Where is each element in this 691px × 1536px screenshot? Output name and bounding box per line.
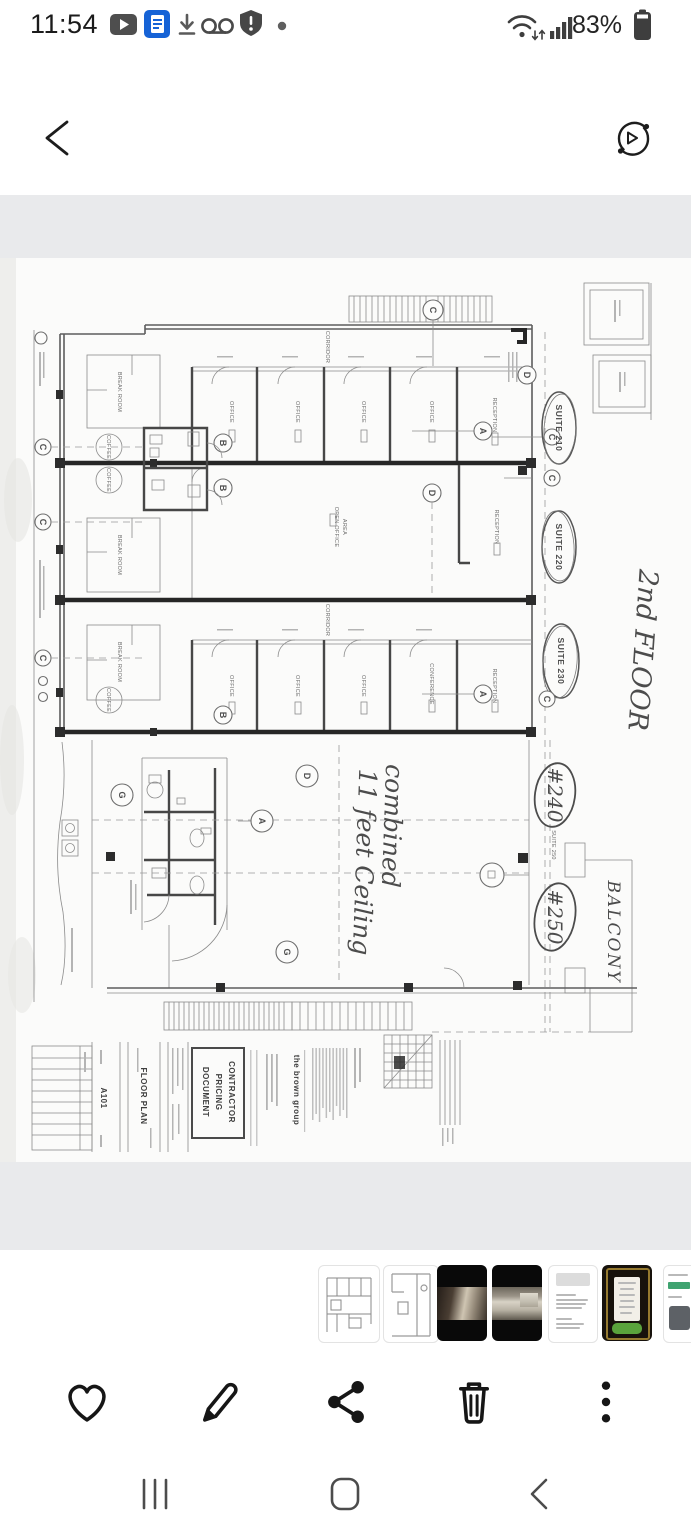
delete-button[interactable]: [446, 1374, 502, 1430]
sheet-number: A101: [99, 1087, 108, 1108]
grid-bubble: D: [302, 773, 312, 780]
thumbnail-listing-card-2[interactable]: [663, 1265, 691, 1343]
room-label: RECEPTION: [493, 510, 499, 545]
share-button[interactable]: [318, 1374, 374, 1430]
room-label: CORRIDOR: [324, 331, 330, 363]
thumbnail-floor-plan-detail[interactable]: [383, 1265, 439, 1343]
room-label: BREAK ROOM: [116, 372, 122, 412]
grid-bubble: A: [257, 818, 267, 825]
thumbnail-strip: [0, 1250, 691, 1355]
recents-button[interactable]: [127, 1468, 183, 1520]
thumbnail-listing-card[interactable]: [548, 1265, 598, 1343]
grid-bubble: C: [542, 696, 552, 703]
thumbnail-office-photo[interactable]: [492, 1265, 542, 1341]
heart-icon: [70, 1386, 104, 1419]
room-label: BREAK ROOM: [116, 535, 122, 575]
svg-text:SUITE 220: SUITE 220: [554, 524, 564, 571]
grid-bubble: C: [38, 519, 48, 526]
grid-bubble: C: [38, 655, 48, 662]
room-label: BREAK ROOM: [116, 642, 122, 682]
floor-plan-drawing: C CO: [0, 258, 691, 1162]
photo-viewer[interactable]: C CO: [0, 195, 691, 1250]
home-button[interactable]: [317, 1468, 373, 1520]
grid-bubble: B: [218, 440, 228, 447]
room-label: OFFICE: [294, 401, 300, 423]
battery-percent: 83%: [572, 11, 622, 40]
thumbnail-menu-sign[interactable]: [602, 1265, 652, 1341]
grid-bubble: G: [117, 791, 127, 798]
back-nav-button[interactable]: [512, 1468, 568, 1520]
trash-icon: [461, 1384, 487, 1422]
grid-bubble: D: [427, 490, 437, 497]
svg-text:#240: #240: [543, 768, 567, 823]
handwritten-balcony: BALCONY: [603, 879, 623, 983]
favorite-button[interactable]: [59, 1374, 115, 1430]
grid-bubble: C: [38, 444, 48, 451]
wifi-icon: [509, 16, 544, 39]
room-label: OFFICE: [428, 401, 434, 423]
sheet-title: FLOOR PLAN: [139, 1068, 148, 1125]
room-label: OPEN OFFICE: [333, 507, 339, 548]
room-label: OFFICE: [228, 401, 234, 423]
grid-bubble: A: [478, 428, 488, 435]
kebab-menu-icon: [602, 1381, 610, 1422]
room-label: RECEPTION: [491, 669, 497, 704]
room-label: RECEPTION: [491, 398, 497, 433]
pencil-icon: [205, 1385, 236, 1420]
firm-name: the brown group: [292, 1055, 301, 1126]
home-icon: [332, 1479, 358, 1509]
back-nav-icon: [532, 1480, 546, 1508]
room-label: COFFEE: [105, 468, 111, 492]
grid-bubble: B: [218, 712, 228, 719]
suite-250-label: SUITE 250: [550, 830, 556, 860]
room-label: AREA: [341, 519, 347, 535]
svg-text:PRICING: PRICING: [214, 1074, 223, 1111]
svg-text:SUITE 210: SUITE 210: [554, 405, 564, 452]
room-label: OFFICE: [294, 675, 300, 697]
motion-photo-icon[interactable]: [618, 123, 649, 155]
svg-text:#250: #250: [543, 890, 567, 945]
navigation-bar: [0, 1452, 691, 1536]
more-button[interactable]: [578, 1374, 634, 1430]
grid-bubble: A: [478, 691, 488, 698]
status-bar: 11:54: [0, 0, 691, 52]
svg-text:DOCUMENT: DOCUMENT: [201, 1067, 210, 1117]
svg-text:SUITE 230: SUITE 230: [556, 638, 566, 685]
room-label: CORRIDOR: [324, 604, 330, 636]
gallery-top-bar: [0, 96, 691, 186]
room-label: CONFERENCE: [428, 663, 434, 705]
room-label: OFFICE: [228, 675, 234, 697]
edit-button[interactable]: [190, 1374, 246, 1430]
grid-bubble: B: [218, 485, 228, 492]
room-label: OFFICE: [360, 675, 366, 697]
back-icon[interactable]: [47, 122, 67, 154]
phone-screen: 11:54: [0, 0, 691, 1536]
thumbnail-hallway-photo[interactable]: [437, 1265, 487, 1341]
svg-text:CONTRACTOR: CONTRACTOR: [227, 1061, 236, 1123]
room-label: OFFICE: [360, 401, 366, 423]
signal-icon: [550, 17, 572, 39]
share-icon: [328, 1381, 364, 1423]
battery-icon: [634, 10, 651, 41]
grid-bubble: G: [282, 948, 292, 955]
grid-bubble: D: [522, 372, 532, 379]
action-bar: [0, 1360, 691, 1448]
room-label: COFFEE: [105, 688, 111, 712]
grid-bubble: C: [428, 307, 438, 314]
thumbnail-floor-plan[interactable]: [318, 1265, 380, 1343]
recents-icon: [144, 1480, 166, 1508]
grid-bubble: C: [547, 475, 557, 482]
